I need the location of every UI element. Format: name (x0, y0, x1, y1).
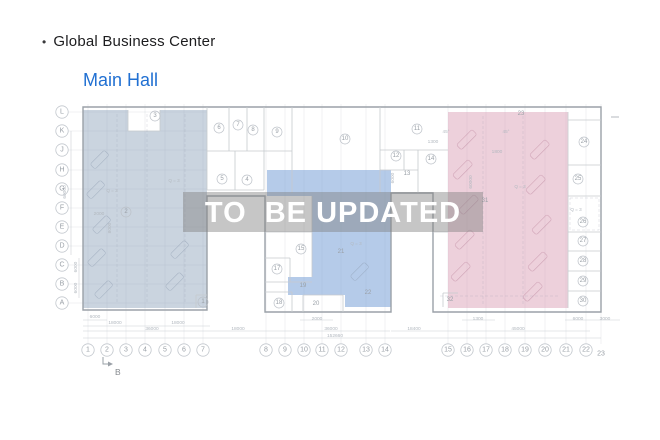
room-number: 7 (236, 122, 240, 128)
dimension-label: 6000 (73, 261, 79, 272)
note-label: 45° (503, 129, 510, 134)
room-number: 20 (313, 301, 320, 307)
room-number: 9 (275, 129, 279, 135)
room-number: 28 (580, 258, 587, 264)
grid-col-label: 22 (582, 347, 590, 354)
room-number: 22 (365, 290, 372, 296)
dimension-label: 8000 (107, 222, 113, 233)
room-number: 13 (404, 171, 411, 177)
dimension-label: 1300 (428, 139, 439, 145)
grid-col-label: 7 (201, 347, 205, 354)
section-marker-label: B (115, 367, 121, 377)
page: • Global Business Center Main Hall (0, 0, 660, 440)
dimension-label: 6000 (73, 282, 79, 293)
note-label: Q = 3 (350, 241, 362, 246)
grid-col-label: 15 (444, 347, 452, 354)
grid-row-label: D (59, 243, 64, 250)
grid-col-label: 18 (501, 347, 509, 354)
floor-plan: 6000180003600018000180002000360001526601… (0, 0, 660, 440)
grid-col-label: 16 (463, 347, 471, 354)
grid-col-label: 13 (362, 347, 370, 354)
grid-row-label: B (60, 281, 65, 288)
note-label: Q = 3 (570, 207, 582, 212)
room-number: 32 (447, 297, 454, 303)
update-banner: TO BE UPDATED (183, 192, 483, 232)
grid-col-label: 12 (337, 347, 345, 354)
room-number: 19 (300, 283, 307, 289)
dimension-label: 45000 (511, 326, 525, 332)
room-number: 6 (217, 125, 221, 131)
grid-col-label: 3 (124, 347, 128, 354)
room-number: 23 (518, 111, 525, 117)
grid-col-label: 21 (562, 347, 570, 354)
grid-col-label: 9 (283, 347, 287, 354)
grid-row-label: K (60, 128, 65, 135)
dimension-label: 152660 (327, 333, 343, 339)
grid-col-label: 5 (163, 347, 167, 354)
dimension-label: 2000 (94, 211, 105, 217)
grid-col-label: 4 (143, 347, 147, 354)
grid-col-label: 23 (597, 351, 605, 358)
room-number: 5 (220, 176, 224, 182)
room-number: 4 (245, 177, 249, 183)
grid-col-label: 2 (105, 347, 109, 354)
room-number: 17 (274, 266, 281, 272)
grid-row-label: J (60, 147, 64, 154)
dimension-label: 6000 (90, 314, 101, 320)
note-label: Q = 3 (514, 184, 526, 189)
grid-col-label: 20 (541, 347, 549, 354)
dimension-label: 36000 (324, 326, 338, 332)
room-number: 24 (581, 139, 588, 145)
dimension-label: 18000 (108, 320, 122, 326)
dimension-label: 1800 (492, 149, 503, 155)
grid-col-label: 17 (482, 347, 490, 354)
room-number: 29 (580, 278, 587, 284)
grid-col-labels: 1234567891011121314151617181920212223 (82, 344, 605, 358)
grid-row-label: E (60, 224, 65, 231)
room-number: 8 (251, 127, 255, 133)
room-number: 25 (575, 176, 582, 182)
grid-row-labels: LKJHGFEDCBA (56, 106, 68, 309)
dimension-label: 3000 (600, 316, 611, 322)
room-number: 27 (580, 238, 587, 244)
dimension-label: 36000 (145, 326, 159, 332)
grid-col-label: 1 (86, 347, 90, 354)
section-marker: B (103, 357, 121, 377)
grid-row-label: C (59, 262, 64, 269)
room-number: 3 (153, 113, 157, 119)
grid-col-label: 8 (264, 347, 268, 354)
grid-row-label: A (60, 300, 65, 307)
room-number: 14 (428, 156, 435, 162)
note-label: 45° (443, 129, 450, 134)
dimension-label: 1300 (473, 316, 484, 322)
dimension-label: 2000 (312, 316, 323, 322)
center-region-fill (267, 170, 391, 307)
room-number: 21 (338, 249, 345, 255)
room-number: 18 (276, 300, 283, 306)
grid-col-label: 6 (182, 347, 186, 354)
room-number: 10 (342, 136, 349, 142)
grid-col-label: 19 (521, 347, 529, 354)
dimension-label: 6000 (573, 316, 584, 322)
dimension-label: 18400 (407, 326, 421, 332)
note-label: Q = 3 (106, 188, 118, 193)
grid-col-label: 10 (300, 347, 308, 354)
dimension-label: 18000 (231, 326, 245, 332)
grid-row-label: H (59, 167, 64, 174)
grid-row-label: L (60, 109, 64, 116)
room-number: 26 (580, 219, 587, 225)
banner-text: TO BE UPDATED (205, 197, 461, 229)
dimension-label: 18000 (171, 320, 185, 326)
grid-col-label: 11 (318, 347, 325, 354)
dimension-label: 6000 (390, 172, 396, 183)
room-number: 12 (393, 153, 400, 159)
room-number: 11 (414, 126, 421, 132)
grid-col-label: 14 (381, 347, 389, 354)
dimension-label: 60000 (468, 175, 474, 189)
note-label: Q = 3 (168, 178, 180, 183)
room-number: 15 (298, 246, 305, 252)
grid-row-label: F (60, 205, 64, 212)
room-number: 30 (580, 298, 587, 304)
grid-row-label: G (59, 186, 64, 193)
